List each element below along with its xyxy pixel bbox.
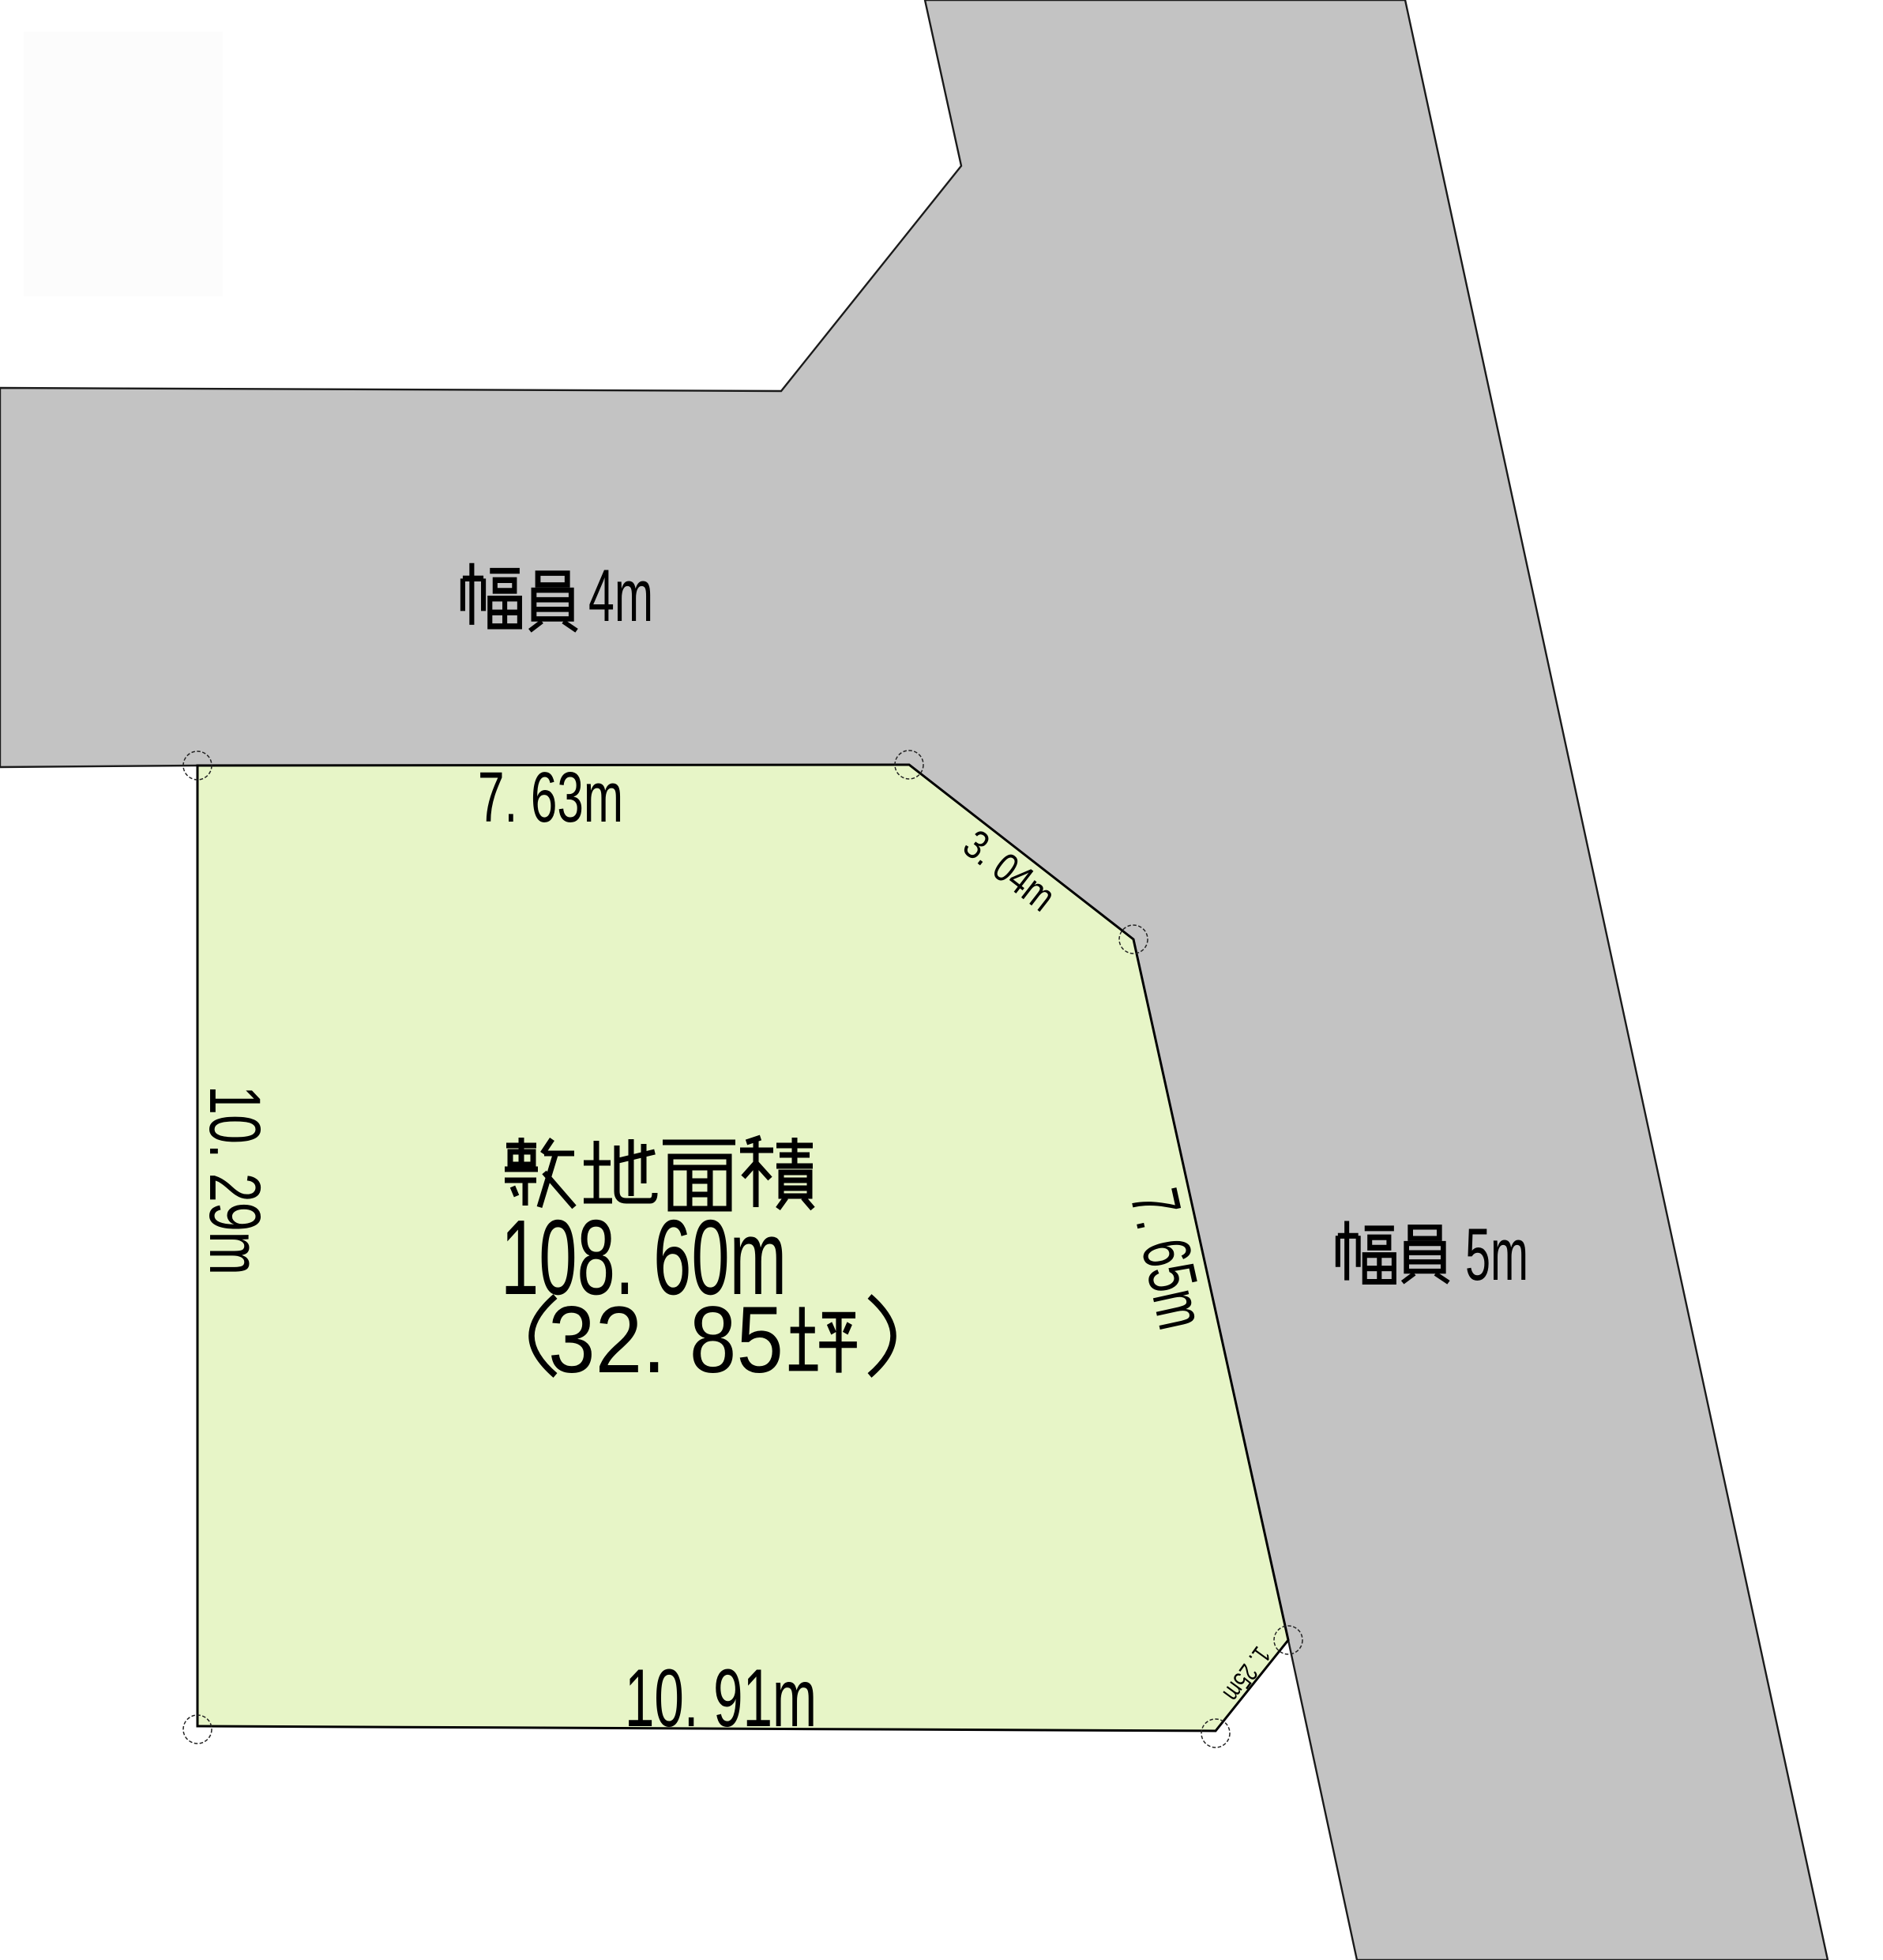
svg-text:4m: 4m bbox=[588, 554, 653, 637]
svg-text:10. 29m: 10. 29m bbox=[194, 1085, 275, 1275]
svg-text:10. 91m: 10. 91m bbox=[625, 1653, 817, 1744]
svg-text:32. 85: 32. 85 bbox=[548, 1287, 784, 1393]
svg-text:7. 63m: 7. 63m bbox=[478, 758, 623, 837]
svg-text:5m: 5m bbox=[1465, 1213, 1528, 1296]
